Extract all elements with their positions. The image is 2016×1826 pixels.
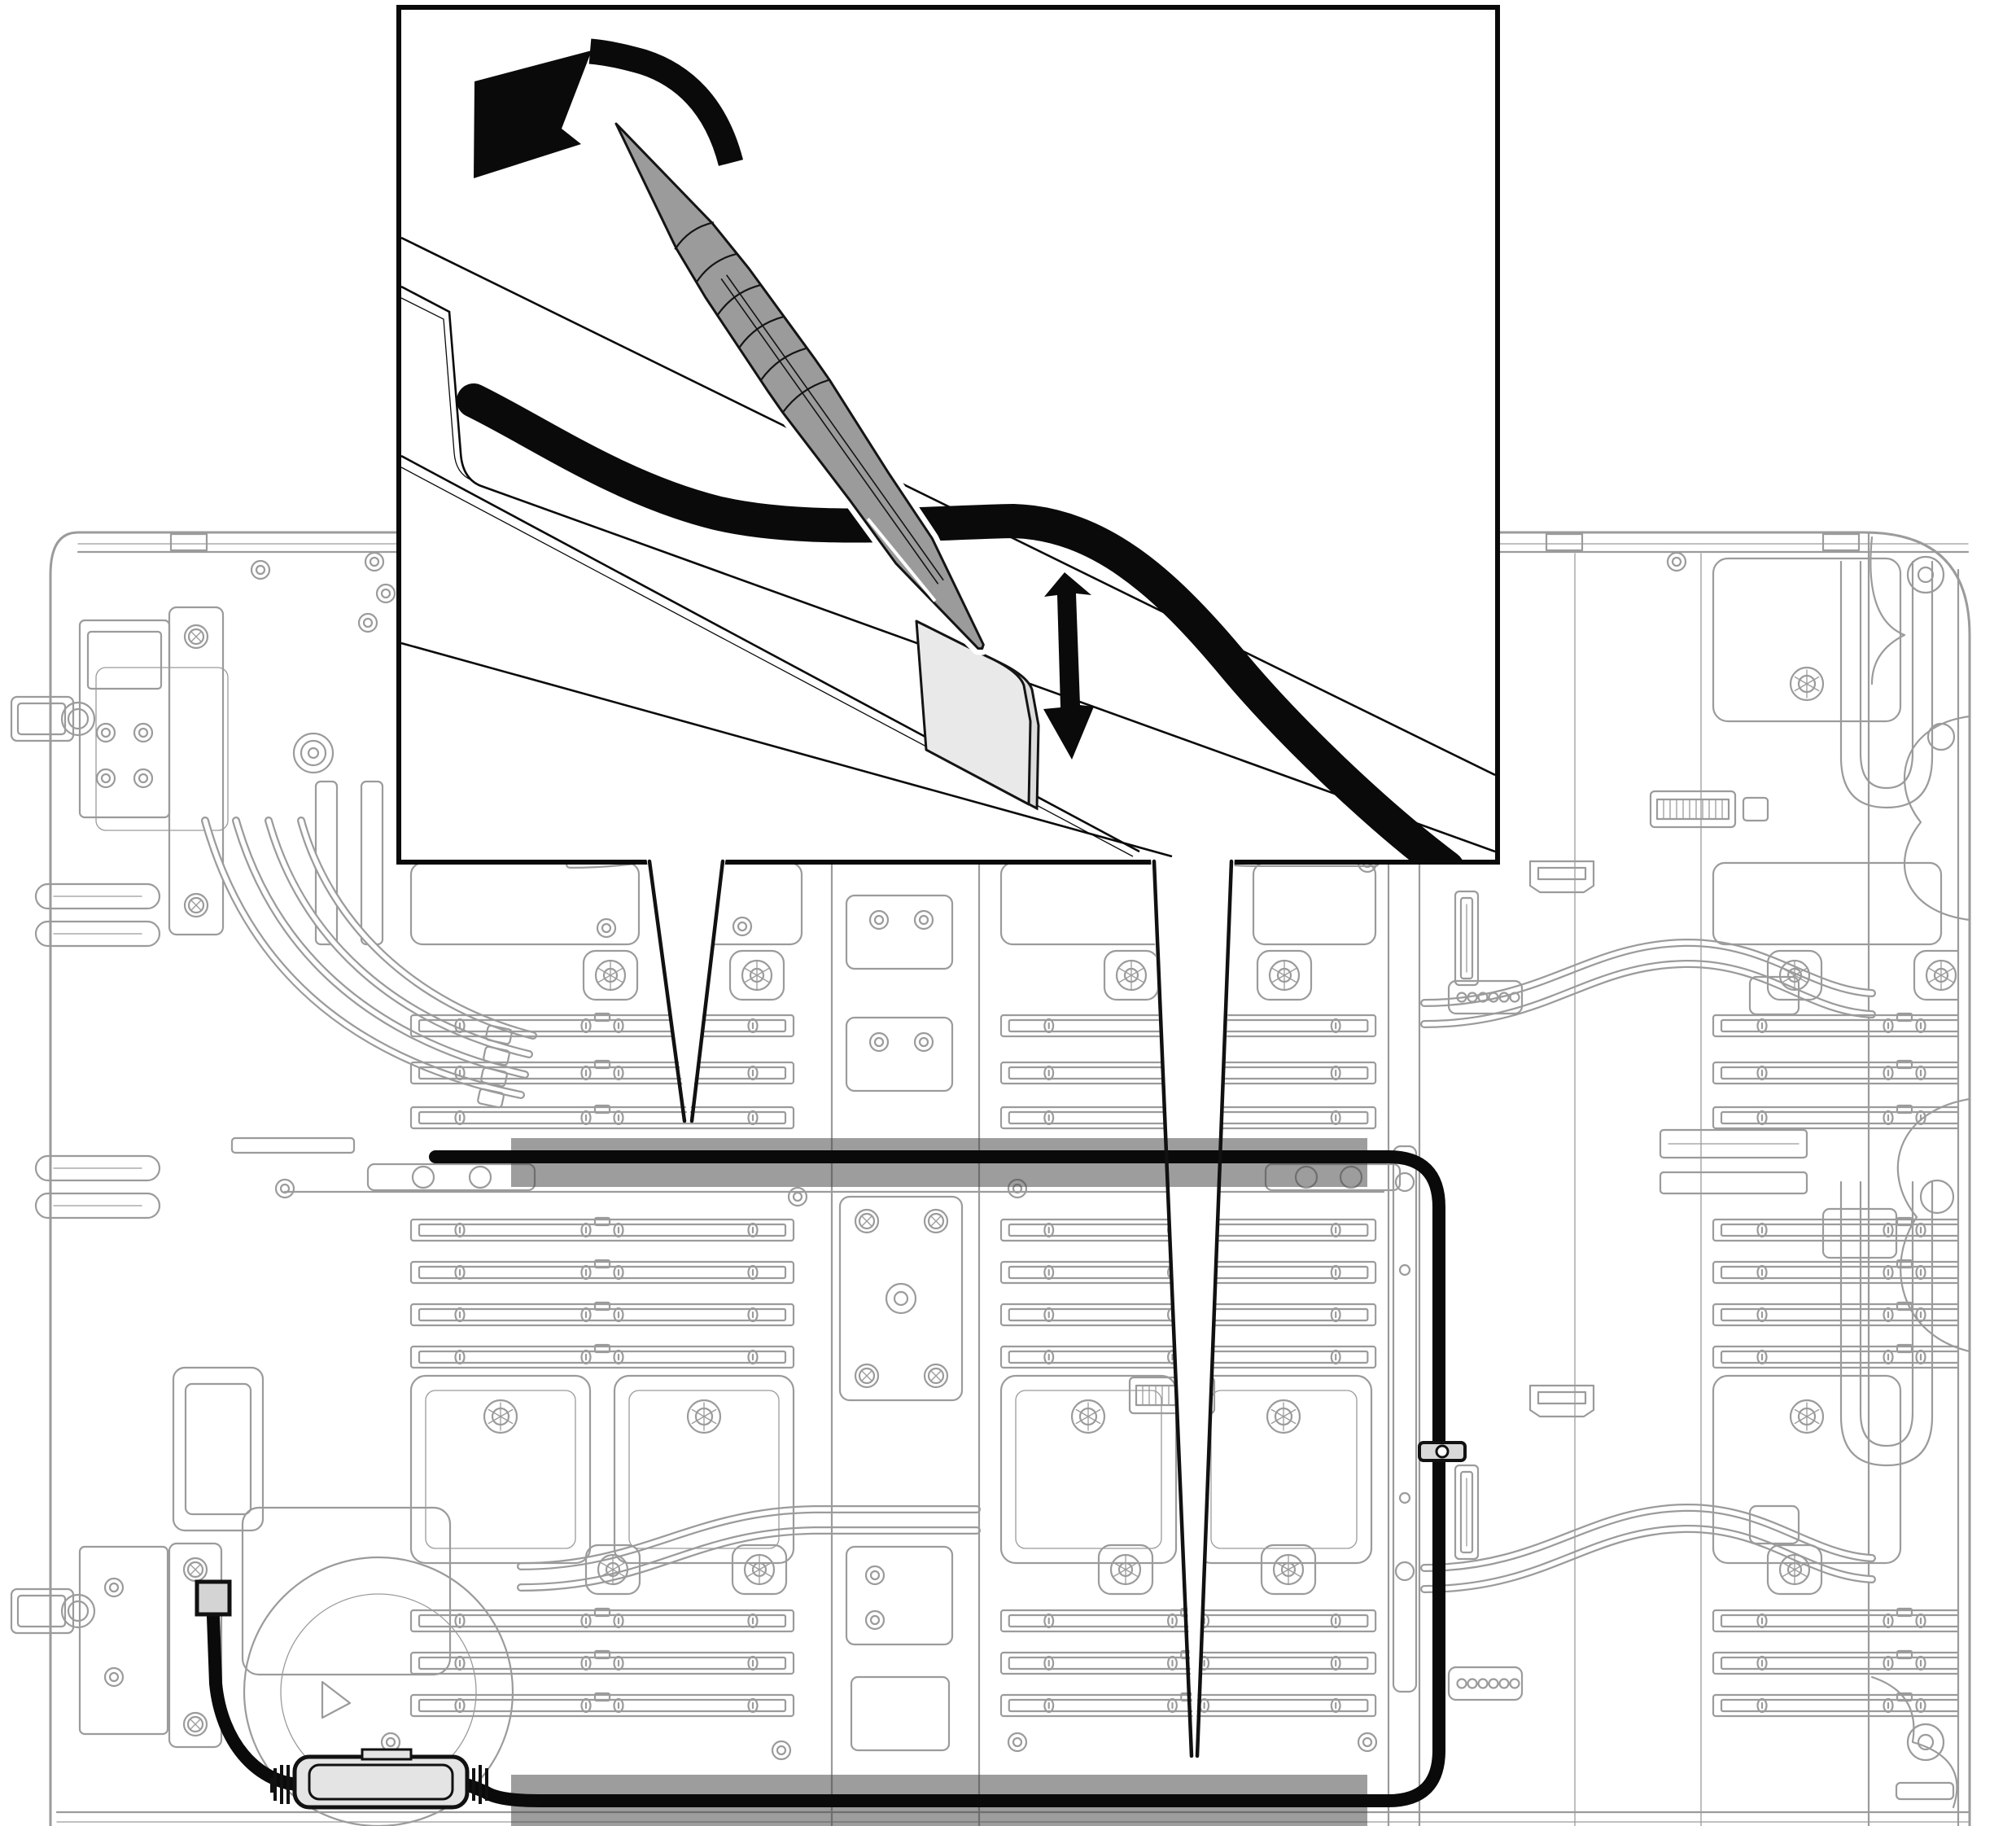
cable-connector [197,1582,230,1614]
left-io-connectors [11,697,350,1718]
technical-diagram-svg [0,0,2016,1826]
right-node-connectors [1449,554,1896,1826]
inset-callout [399,7,1498,868]
cable-to-connector [213,1617,298,1784]
cable-clip [1419,1443,1465,1460]
right-funnel-fill [1151,857,1235,1758]
inline-cable-retainer [270,1749,487,1807]
figure-canvas [0,0,2016,1826]
